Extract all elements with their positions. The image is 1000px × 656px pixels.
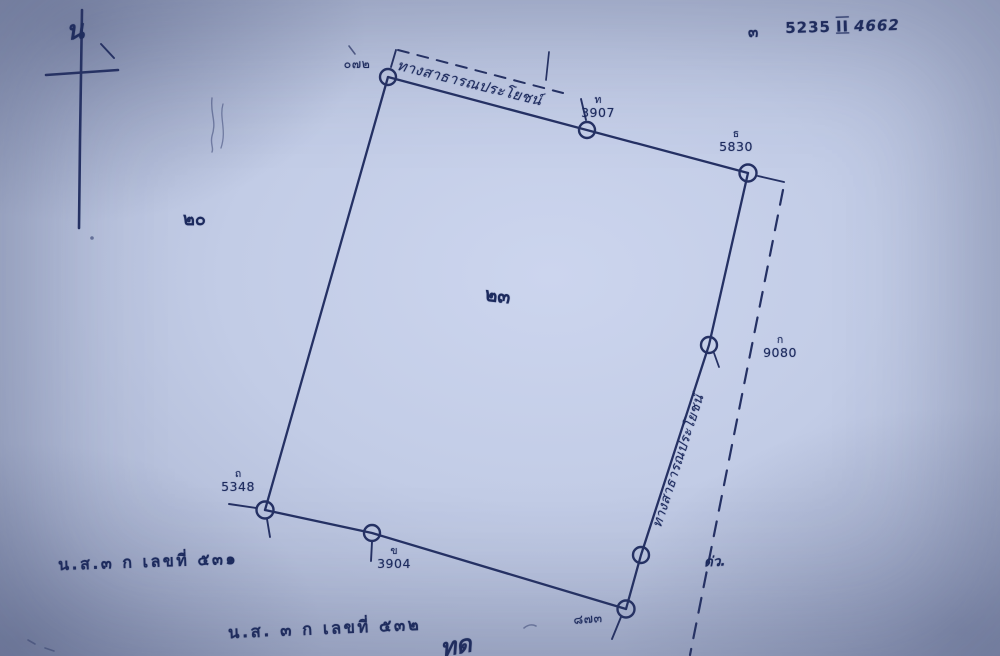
point-label-southwest: ถ 5348 [210,469,266,493]
parcel-number-left: ๒๐ [183,204,206,233]
map-sheet-suffix: 4662 [854,16,900,35]
point-number: 3907 [572,106,624,119]
point-number: 9080 [752,346,808,359]
ink-dot [90,236,94,240]
scribble-mark [28,640,54,651]
north-arrow-tick [101,44,114,58]
point-label-east: ก 9080 [752,335,808,359]
map-sheet-roman: II [836,17,850,35]
annotation-near-dashed-line: ด่ว. [704,550,726,573]
parcel-boundary [265,77,748,609]
tick-dashed-end [546,52,549,80]
scribble-mark [211,98,213,152]
dashed-line-right [690,190,783,655]
map-sheet-reference: ๓ 5235II4662 [748,16,901,44]
point-label-north-mid: ท 3907 [572,95,624,119]
tick-top-vertex [391,50,396,67]
point-number: 5348 [210,480,266,493]
tick-southeast [612,617,621,639]
tick-small-mark [349,46,355,54]
survey-point-markers [257,69,757,618]
point-label-south-mid: ข 3904 [368,546,420,570]
boundary-bottom-edge [265,510,626,609]
point-number: 3904 [368,557,420,570]
point-number: 5830 [710,140,762,153]
point-label-top: ๐๗๒ [334,57,380,70]
point-number: ๐๗๒ [334,57,380,70]
point-label-northeast: ธ 5830 [710,129,762,153]
north-letter-label: น [64,9,86,52]
tick-southwest-down [267,519,270,537]
boundary-left-edge [265,77,388,510]
map-sheet-prefix: ๓ [748,20,760,44]
boundary-right-edge [626,173,748,609]
scribble-mark [221,104,223,148]
map-sheet-number: 5235 [785,18,831,37]
tick-northeast [758,176,784,182]
scanned-survey-document: น ๓ 5235II4662 ทางสาธารณประโยชน์ ทางสาธา… [0,0,1000,656]
scribble-mark [524,625,536,628]
map-sheet-number-group: 5235II4662 [785,16,900,37]
boundary-top-edge [388,77,748,173]
tick-southwest-left [229,504,256,508]
parcel-number-center: ๒๓ [484,280,513,313]
